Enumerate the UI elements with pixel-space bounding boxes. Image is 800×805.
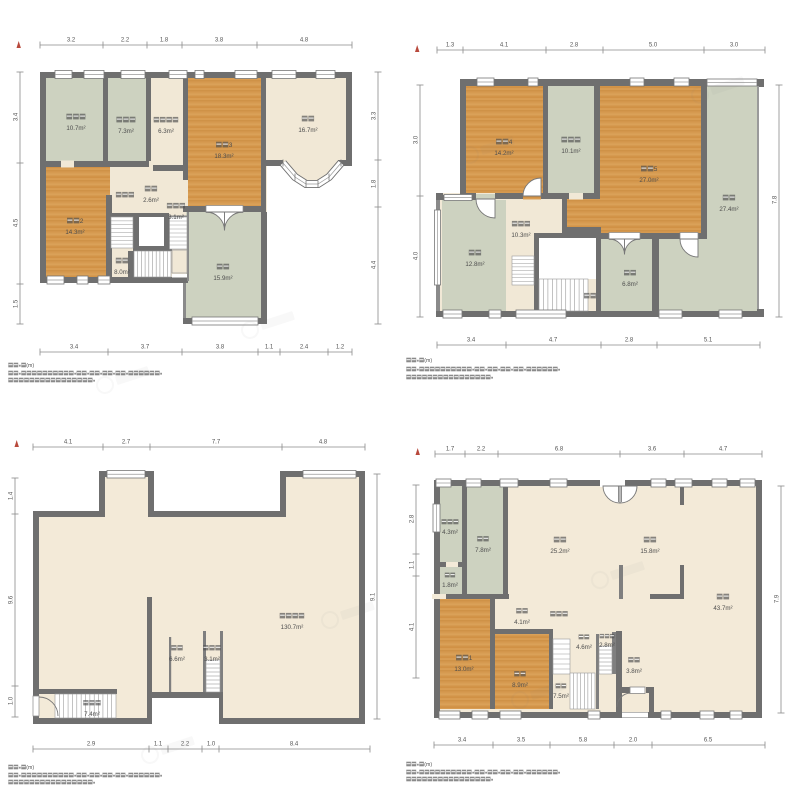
svg-text:7.5m²: 7.5m² xyxy=(553,693,569,700)
svg-text:4.5: 4.5 xyxy=(14,218,20,227)
svg-text:2.9: 2.9 xyxy=(87,742,96,748)
svg-text:4.3m²: 4.3m² xyxy=(442,529,458,536)
svg-text:3.6: 3.6 xyxy=(648,447,657,453)
svg-text:3.3: 3.3 xyxy=(372,111,378,120)
svg-text:3.4: 3.4 xyxy=(14,112,20,121)
svg-text:3.4: 3.4 xyxy=(458,738,467,744)
svg-text:5.1: 5.1 xyxy=(704,338,713,344)
svg-text:27.0m²: 27.0m² xyxy=(639,177,658,184)
svg-text:2.8: 2.8 xyxy=(625,338,634,344)
svg-text:4.1m²: 4.1m² xyxy=(514,619,530,626)
svg-text:1.1: 1.1 xyxy=(410,560,416,569)
svg-text:(m): (m) xyxy=(26,363,34,369)
svg-text:1.7: 1.7 xyxy=(446,447,455,453)
svg-text:8.9m²: 8.9m² xyxy=(512,682,528,689)
svg-text:4.7: 4.7 xyxy=(549,338,558,344)
svg-text:10.3m²: 10.3m² xyxy=(511,232,530,239)
svg-text:3.1m²: 3.1m² xyxy=(204,656,220,663)
svg-text:6.3m²: 6.3m² xyxy=(158,128,174,135)
svg-text:4.7: 4.7 xyxy=(719,447,728,453)
svg-text:13.0m²: 13.0m² xyxy=(454,666,473,673)
svg-text:4.1: 4.1 xyxy=(64,440,73,446)
svg-text:10.1m²: 10.1m² xyxy=(561,148,580,155)
svg-text:4.6m²: 4.6m² xyxy=(576,644,592,651)
svg-text:3: 3 xyxy=(229,142,233,149)
svg-text:3.4: 3.4 xyxy=(70,345,79,351)
svg-text:15.8m²: 15.8m² xyxy=(640,548,659,555)
svg-text:9.6: 9.6 xyxy=(9,595,15,604)
svg-text:6.6m²: 6.6m² xyxy=(169,656,185,663)
svg-text:2.6m²: 2.6m² xyxy=(143,197,159,204)
svg-text:15.9m²: 15.9m² xyxy=(213,275,232,282)
svg-text:43.7m²: 43.7m² xyxy=(713,605,732,612)
svg-text:12.8m²: 12.8m² xyxy=(465,261,484,268)
svg-text:3.0: 3.0 xyxy=(730,43,739,49)
svg-text:3.8: 3.8 xyxy=(216,345,225,351)
svg-text:1.1: 1.1 xyxy=(265,345,274,351)
svg-text:4.4: 4.4 xyxy=(372,260,378,269)
svg-text:7.7: 7.7 xyxy=(212,440,221,446)
svg-text:14.2m²: 14.2m² xyxy=(494,150,513,157)
svg-text:3.1m²: 3.1m² xyxy=(168,214,184,221)
svg-text:25.2m²: 25.2m² xyxy=(550,548,569,555)
svg-text:2.4: 2.4 xyxy=(300,345,309,351)
svg-text:7.4m²: 7.4m² xyxy=(84,711,100,718)
svg-text:3.8m²: 3.8m² xyxy=(626,668,642,675)
svg-text:2.8m²: 2.8m² xyxy=(599,642,615,649)
svg-text:2.7: 2.7 xyxy=(122,440,131,446)
svg-text:1.3: 1.3 xyxy=(446,43,455,49)
svg-text:3.7: 3.7 xyxy=(141,345,150,351)
svg-text:8.4: 8.4 xyxy=(290,742,299,748)
svg-text:4.1: 4.1 xyxy=(500,43,509,49)
svg-text:3.2: 3.2 xyxy=(67,38,76,44)
svg-text:8.0m²: 8.0m² xyxy=(114,269,130,276)
svg-text:27.4m²: 27.4m² xyxy=(719,206,738,213)
svg-text:3.5: 3.5 xyxy=(517,738,526,744)
svg-text:16.7m²: 16.7m² xyxy=(298,127,317,134)
svg-text:(m): (m) xyxy=(424,358,432,364)
svg-text:1.8: 1.8 xyxy=(160,38,169,44)
svg-text:2.8: 2.8 xyxy=(570,43,579,49)
svg-text:4.0: 4.0 xyxy=(414,251,420,260)
svg-text:1.8m²: 1.8m² xyxy=(442,582,458,589)
svg-text:(m): (m) xyxy=(424,762,432,768)
svg-text:1.2: 1.2 xyxy=(336,345,345,351)
svg-text:1: 1 xyxy=(469,655,473,662)
svg-text:4.8: 4.8 xyxy=(300,38,309,44)
svg-text:2.2: 2.2 xyxy=(121,38,130,44)
svg-text:9.1: 9.1 xyxy=(371,592,377,601)
svg-text:6.5: 6.5 xyxy=(704,738,713,744)
svg-text:1.4: 1.4 xyxy=(9,491,15,500)
svg-text:1.8: 1.8 xyxy=(372,179,378,188)
svg-text:7.8: 7.8 xyxy=(773,195,779,204)
svg-text:130.7m²: 130.7m² xyxy=(281,624,304,631)
svg-text:2: 2 xyxy=(80,218,84,225)
svg-text:(m): (m) xyxy=(26,765,34,771)
svg-text:10.7m²: 10.7m² xyxy=(66,125,85,132)
svg-text:6.8m²: 6.8m² xyxy=(622,281,638,288)
svg-text:7.3m²: 7.3m² xyxy=(118,128,134,135)
svg-text:5.0: 5.0 xyxy=(649,43,658,49)
svg-text:5.8: 5.8 xyxy=(579,738,588,744)
svg-text:1.0: 1.0 xyxy=(207,742,216,748)
svg-text:6.8: 6.8 xyxy=(555,447,564,453)
svg-text:7.8m²: 7.8m² xyxy=(475,547,491,554)
svg-text:7.9: 7.9 xyxy=(775,594,781,603)
svg-text:14.3m²: 14.3m² xyxy=(65,229,84,236)
svg-text:1.5: 1.5 xyxy=(14,299,20,308)
svg-text:3.0: 3.0 xyxy=(414,135,420,144)
svg-text:4.8: 4.8 xyxy=(319,440,328,446)
svg-text:3.4: 3.4 xyxy=(467,338,476,344)
svg-text:18.3m²: 18.3m² xyxy=(214,153,233,160)
svg-text:4.1: 4.1 xyxy=(410,622,416,631)
svg-text:2.0: 2.0 xyxy=(629,738,638,744)
svg-text:2.2: 2.2 xyxy=(477,447,486,453)
svg-text:5: 5 xyxy=(654,166,658,173)
svg-text:2.8: 2.8 xyxy=(410,514,416,523)
svg-text:3.8: 3.8 xyxy=(215,38,224,44)
svg-text:1.0: 1.0 xyxy=(9,696,15,705)
